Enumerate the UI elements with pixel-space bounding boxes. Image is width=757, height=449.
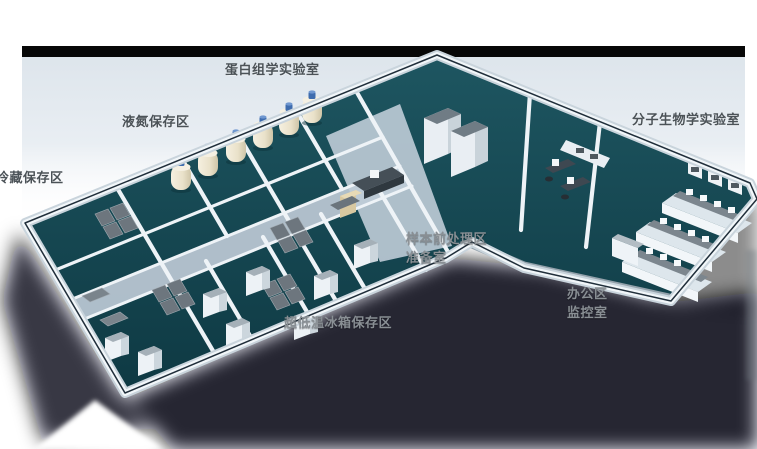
label-sample-pretreatment-area: 样本前处理区: [406, 233, 487, 247]
label-cold-storage: 冷藏保存区: [0, 172, 64, 186]
chair: [561, 195, 569, 200]
label-ultralow-freezer-storage: 超低温冰箱保存区: [284, 317, 392, 331]
chair: [545, 177, 553, 182]
label-preparation-room: 准备室: [406, 252, 447, 266]
label-office-area: 办公区: [567, 288, 608, 302]
label-proteomics-lab: 蛋白组学实验室: [225, 64, 320, 78]
lab-floorplan-figure: 蛋白组学实验室 液氮保存区 冷藏保存区 分子生物学实验室 样本前处理区 准备室 …: [0, 0, 757, 449]
label-liquid-nitrogen-storage: 液氮保存区: [122, 116, 190, 130]
right-edge-shadow-strip: [746, 250, 757, 380]
monitor: [552, 159, 559, 166]
label-monitoring-room: 监控室: [567, 307, 608, 321]
monitor: [567, 177, 574, 184]
monitor: [370, 170, 379, 178]
label-molecular-biology-lab: 分子生物学实验室: [632, 114, 740, 128]
top-border-bar: [22, 46, 745, 57]
lab-3d-render: [0, 0, 757, 449]
